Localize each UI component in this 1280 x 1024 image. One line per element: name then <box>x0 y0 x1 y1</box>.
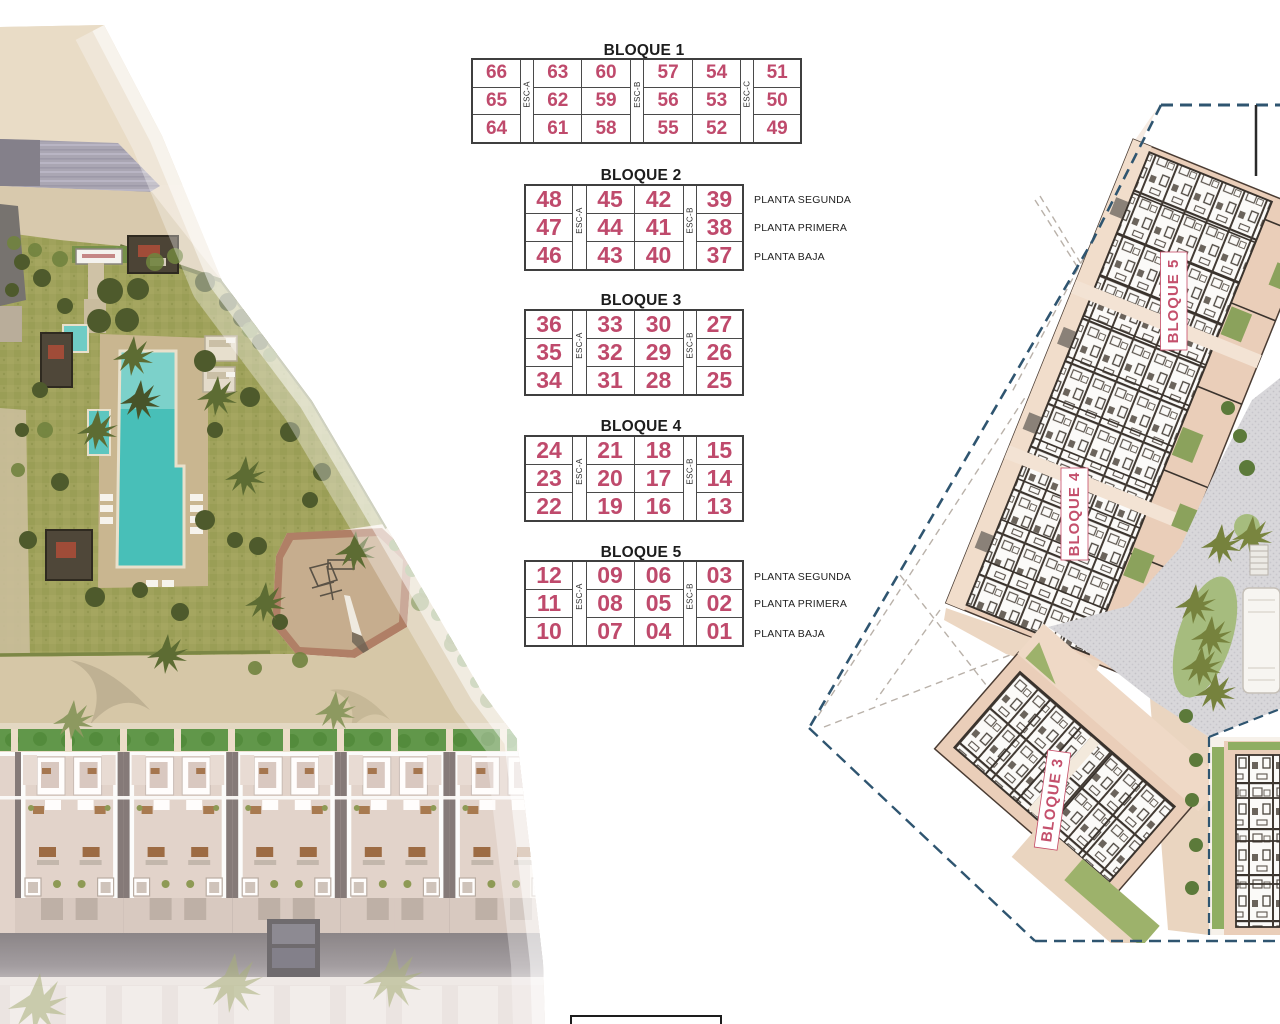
svg-text:BLOQUE 5: BLOQUE 5 <box>1165 259 1182 344</box>
svg-text:BLOQUE 4: BLOQUE 4 <box>1066 472 1083 557</box>
